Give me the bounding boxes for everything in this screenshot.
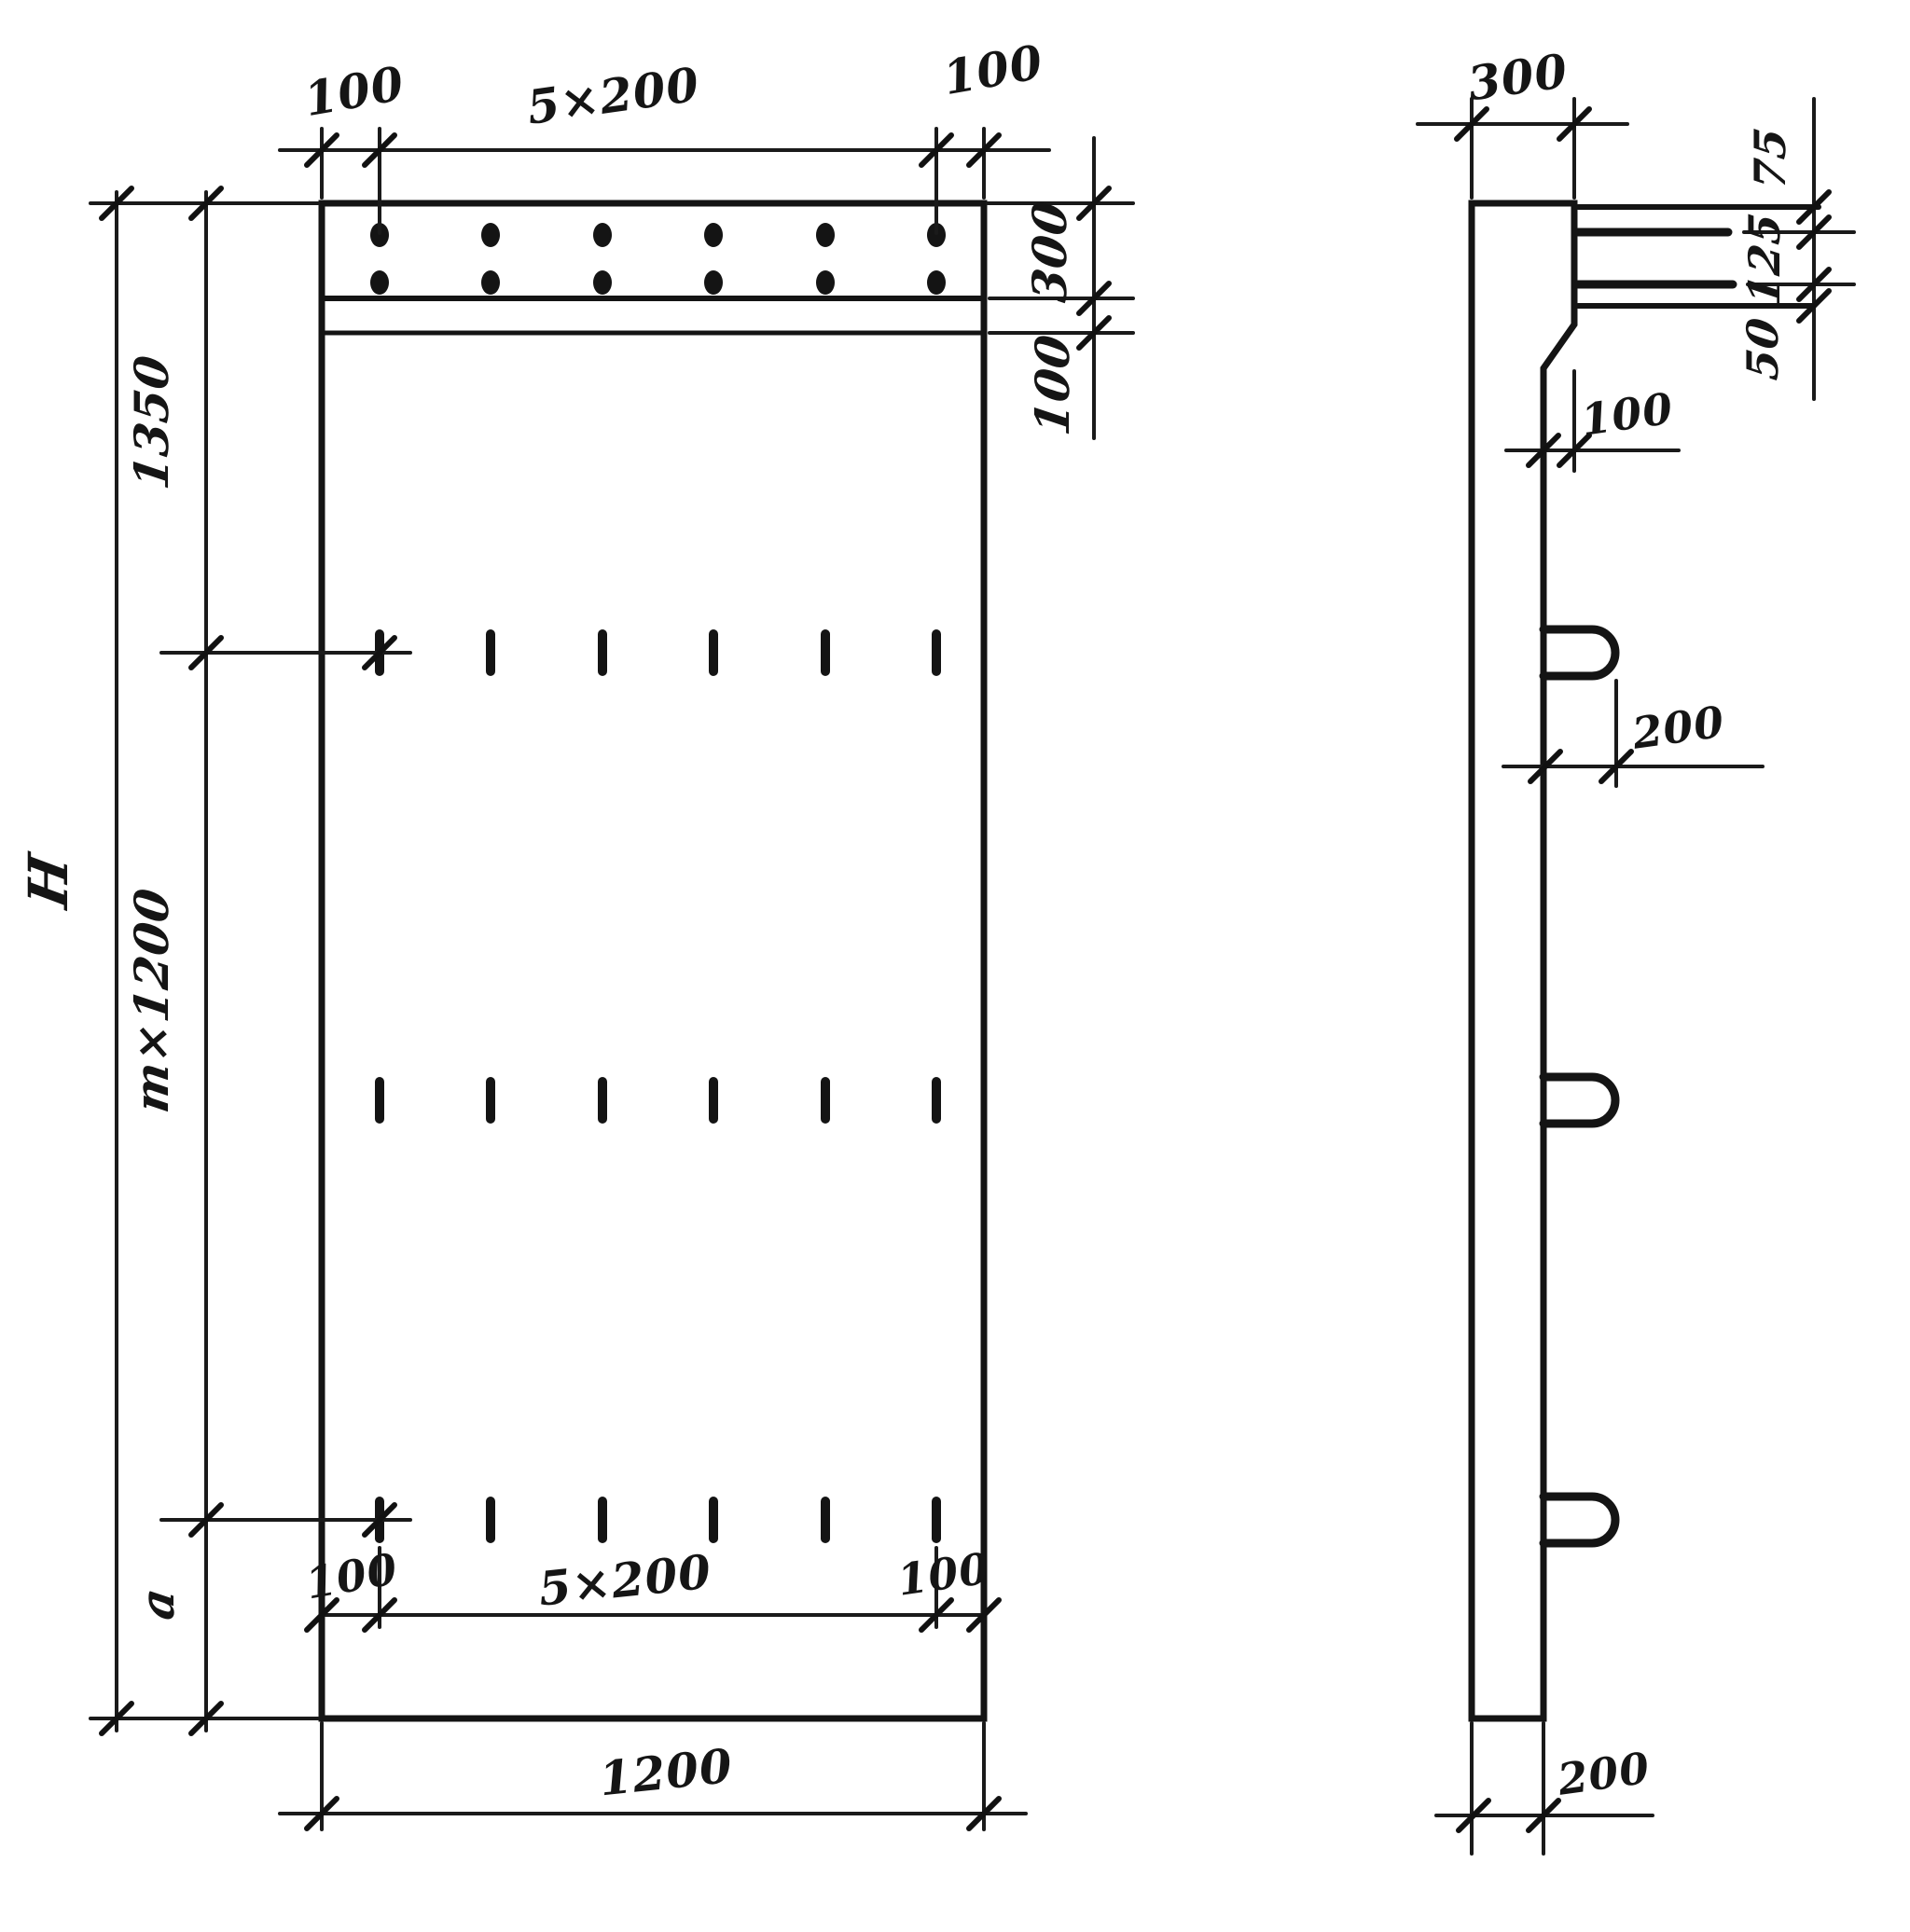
dim-front-top-left-margin: 100	[300, 55, 408, 127]
dim-front-top-spacing: 5×200	[523, 57, 702, 135]
dim-front-top-right-margin: 100	[939, 34, 1047, 105]
dim-front-strip-height: 100	[1025, 331, 1080, 439]
side-bottom-dimension: 200	[1436, 1723, 1654, 1854]
side-top-dimension: 300	[1418, 43, 1627, 198]
dim-front-panel-width: 1200	[597, 1738, 736, 1807]
dim-side-bar-height: 50	[1737, 314, 1788, 383]
front-right-dimension: 300 100	[988, 138, 1133, 438]
drawing-canvas: 100 5×200 100 300 100 H 135	[0, 0, 1910, 1932]
dim-front-middle-segment: m×1200	[124, 884, 179, 1115]
panel-outline	[322, 203, 984, 1718]
front-view: 100 5×200 100 300 100 H 135	[16, 34, 1133, 1829]
front-bottom-inner-dimension: 100 5×200 100	[302, 1543, 999, 1630]
dim-front-overall-height: H	[16, 849, 79, 915]
dim-side-bar-offset: 75	[1745, 124, 1795, 193]
slot-dashes	[375, 629, 941, 1543]
dim-side-loop-length: 200	[1628, 697, 1728, 759]
dim-front-top-segment: 1350	[124, 352, 179, 492]
panel-drawing-svg: 100 5×200 100 300 100 H 135	[0, 0, 1910, 1932]
side-bar-dimension: 75 125 50	[1737, 99, 1829, 399]
dim-side-bottom-width: 200	[1554, 1743, 1654, 1805]
side-outline	[1472, 203, 1574, 1718]
dim-front-bottom-segment: a	[130, 1584, 185, 1623]
dim-side-bar-gap: 125	[1739, 209, 1790, 309]
front-width-dimension: 1200	[280, 1723, 1026, 1829]
front-left-dimension: H 1350 m×1200 a	[16, 188, 410, 1733]
dim-front-bottom-left-margin: 100	[302, 1543, 402, 1608]
dim-front-bottom-right-margin: 100	[894, 1543, 993, 1606]
dim-side-top-width: 300	[1464, 43, 1571, 111]
dim-front-band-height: 300	[1022, 198, 1077, 306]
dim-front-bottom-spacing: 5×200	[536, 1544, 714, 1617]
anchor-dots	[370, 223, 946, 295]
dim-side-chamfer-offset: 100	[1578, 383, 1677, 446]
side-view: 75 125 50 300 100	[1418, 43, 1854, 1854]
side-chamfer-dimension: 100	[1506, 371, 1679, 471]
